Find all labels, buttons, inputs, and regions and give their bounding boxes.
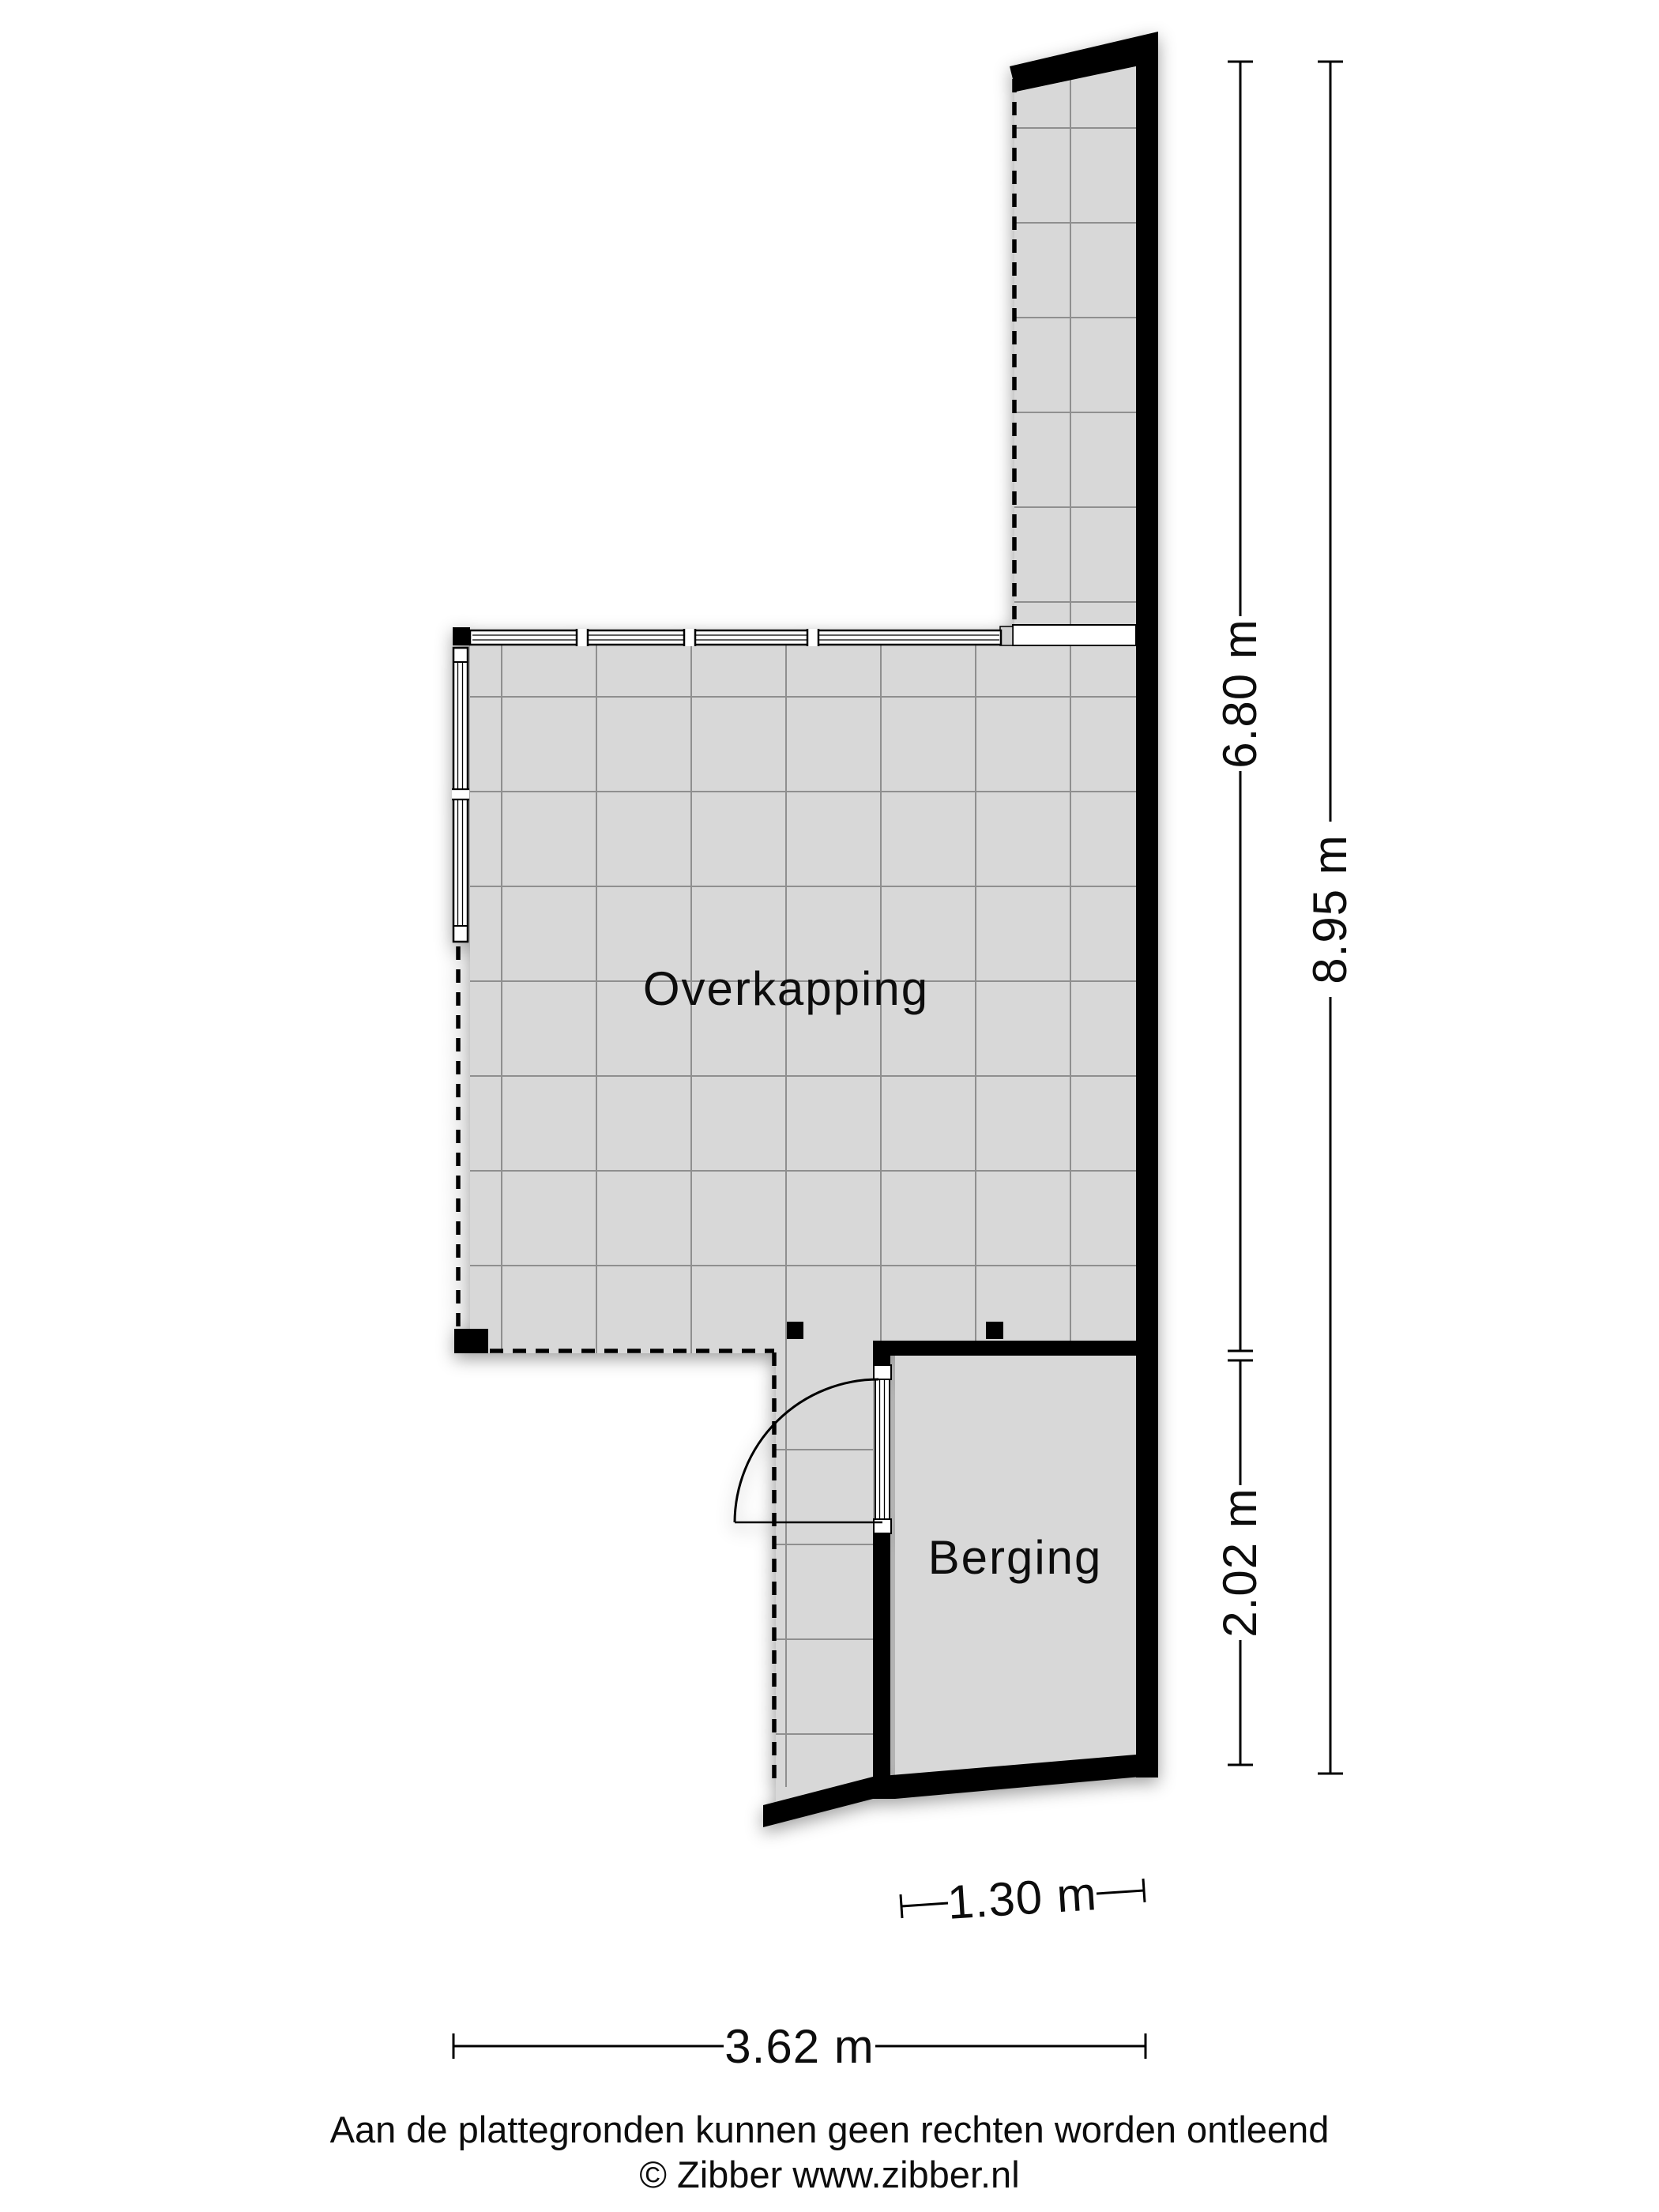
opening-band (1013, 625, 1136, 645)
dim-label-6-80: 6.80 m (1213, 619, 1266, 768)
dim-label-2-02: 2.02 m (1213, 1488, 1266, 1637)
footer-disclaimer: Aan de plattegronden kunnen geen rechten… (330, 2109, 1330, 2150)
door-leaf (875, 1379, 890, 1519)
top-window-band (470, 629, 1001, 646)
room-label-berging: Berging (928, 1531, 1103, 1584)
post-mid (787, 1322, 803, 1339)
room-label-overkapping: Overkapping (643, 962, 929, 1015)
dim-label-8-95: 8.95 m (1303, 834, 1356, 984)
floorplan-page: Overkapping Berging 6.80 m 8.95 m 2.02 m… (0, 0, 1659, 2212)
berging-top-wall (882, 1341, 1155, 1356)
door-frame-top (874, 1365, 891, 1379)
window-mullion (577, 629, 588, 646)
window-mullion (452, 789, 469, 799)
post-right (986, 1322, 1003, 1339)
dim-label-1-30: 1.30 m (946, 1867, 1098, 1929)
door-frame-bottom (874, 1519, 891, 1533)
window-mullion (684, 629, 695, 646)
corridor-floor (1014, 62, 1136, 625)
window-mullion (807, 629, 818, 646)
floorplan-drawing: Overkapping Berging 6.80 m 8.95 m 2.02 m… (0, 0, 1659, 2212)
door-head-stub (873, 1341, 890, 1365)
footer-copyright: © Zibber www.zibber.nl (639, 2154, 1019, 2195)
right-wall (1136, 49, 1158, 1777)
post-top-left (453, 627, 470, 645)
opening-band-cap (1000, 626, 1013, 645)
dim-label-3-62: 3.62 m (724, 2020, 874, 2073)
berging-left-wall (873, 1533, 890, 1781)
door-strip-floor (776, 1353, 873, 1808)
left-window-band (452, 648, 469, 942)
